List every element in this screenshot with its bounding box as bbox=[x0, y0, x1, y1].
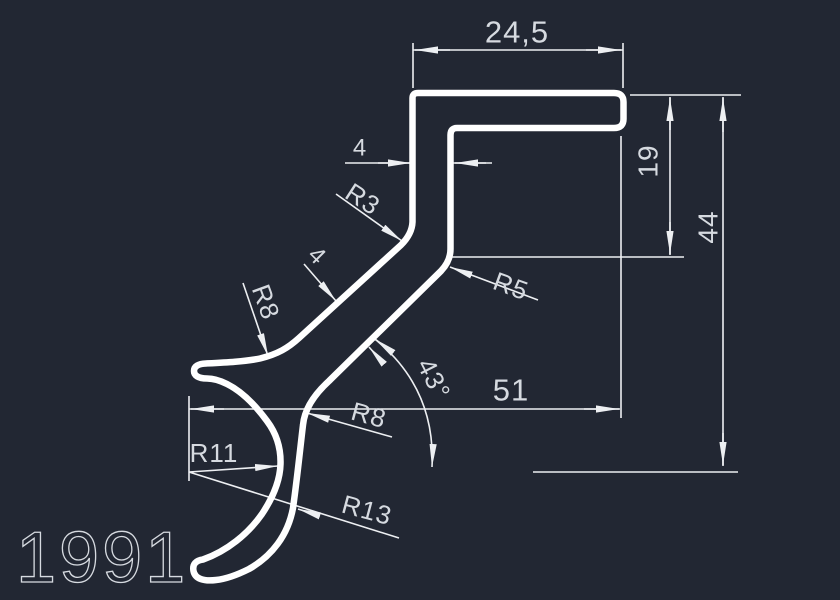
dimension-lines bbox=[189, 50, 723, 467]
profile-outline bbox=[193, 93, 623, 580]
label-thickness-4-top: 4 bbox=[353, 135, 367, 162]
label-fillet-r3: R3 bbox=[340, 177, 386, 221]
leader-4-diagonal-inner bbox=[369, 347, 384, 364]
cad-drawing: 24,5 4 R3 R5 R8 4 43° 51 19 44 R8 R11 R1… bbox=[0, 0, 840, 600]
label-length-51: 51 bbox=[493, 373, 529, 408]
label-angle-43: 43° bbox=[411, 353, 457, 404]
label-fillet-r5: R5 bbox=[489, 266, 532, 306]
angle-arc-43-top-arrow bbox=[375, 339, 388, 349]
label-radius-r11: R11 bbox=[190, 438, 239, 468]
label-height-19: 19 bbox=[633, 144, 664, 177]
cad-canvas: 24,5 4 R3 R5 R8 4 43° 51 19 44 R8 R11 R1… bbox=[0, 0, 840, 600]
label-radius-r13: R13 bbox=[339, 489, 396, 531]
part-number: 1991 bbox=[16, 518, 188, 598]
label-radius-r8-lower: R8 bbox=[348, 396, 390, 434]
label-radius-r8-upper: R8 bbox=[246, 280, 286, 323]
leader-lines bbox=[189, 194, 538, 538]
extension-lines bbox=[189, 43, 741, 481]
label-width-24-5: 24,5 bbox=[485, 15, 549, 50]
label-height-44: 44 bbox=[693, 210, 724, 243]
leader-4-diagonal-outer bbox=[304, 264, 336, 301]
